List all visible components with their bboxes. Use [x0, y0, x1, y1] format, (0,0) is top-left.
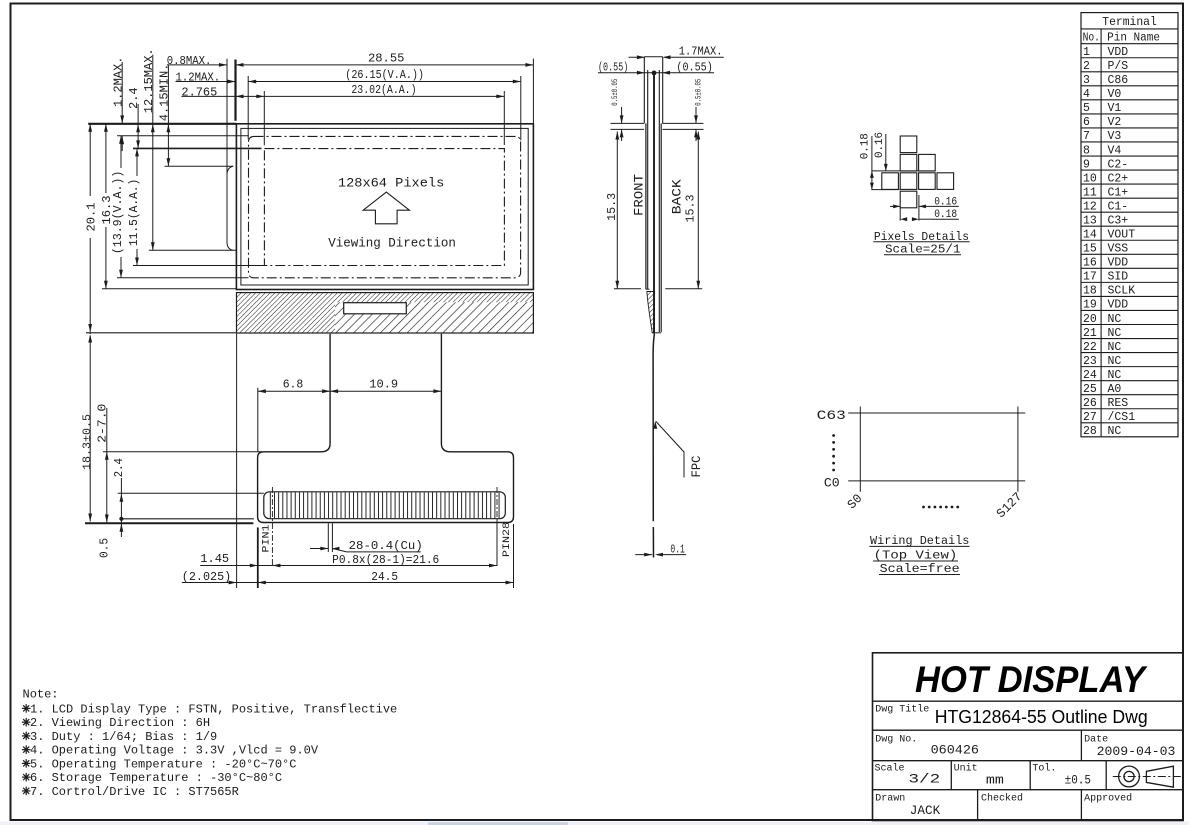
svg-text:C3+: C3+ — [1108, 214, 1129, 227]
svg-text:4. Operating Voltage : 3.3V ,V: 4. Operating Voltage : 3.3V ,Vlcd = 9.0V — [30, 744, 319, 758]
svg-text:NC: NC — [1108, 355, 1122, 368]
svg-text:VOUT: VOUT — [1108, 229, 1136, 242]
svg-text:(0.55): (0.55) — [676, 62, 712, 75]
svg-text:25: 25 — [1083, 383, 1097, 396]
svg-text:15: 15 — [1083, 243, 1097, 256]
svg-text:C63: C63 — [817, 409, 846, 423]
svg-text:20.1: 20.1 — [84, 203, 98, 232]
svg-text:7. Cortrol/Drive IC : ST7565R: 7. Cortrol/Drive IC : ST7565R — [30, 785, 239, 799]
svg-text:2.4: 2.4 — [127, 87, 141, 109]
svg-text:/CS1: /CS1 — [1108, 411, 1136, 424]
svg-text:(13.9(V.A.)): (13.9(V.A.)) — [111, 171, 125, 255]
svg-text:Viewing Direction: Viewing Direction — [328, 236, 456, 251]
svg-text:3. Duty : 1/64; Bias : 1/9: 3. Duty : 1/64; Bias : 1/9 — [30, 730, 217, 744]
svg-text:0.8MAX.: 0.8MAX. — [167, 54, 212, 68]
svg-text:C2+: C2+ — [1108, 172, 1129, 185]
svg-text:C86: C86 — [1108, 74, 1129, 87]
svg-text:(2.025): (2.025) — [182, 570, 231, 584]
svg-text:Tol.: Tol. — [1032, 763, 1056, 775]
svg-text:FPC: FPC — [690, 456, 704, 478]
svg-text:28.55: 28.55 — [368, 52, 404, 66]
svg-text:Pin Name: Pin Name — [1107, 31, 1160, 44]
svg-text:5. Operating Temperature : -20: 5. Operating Temperature : -20°C~70°C — [30, 757, 296, 771]
svg-text:C1-: C1- — [1108, 200, 1129, 213]
svg-text:VDD: VDD — [1108, 299, 1129, 312]
svg-text:1.7MAX.: 1.7MAX. — [679, 45, 723, 58]
svg-text:18: 18 — [1083, 285, 1097, 298]
svg-text:6: 6 — [1083, 116, 1090, 129]
svg-text:HTG12864-55 Outline Dwg: HTG12864-55 Outline Dwg — [935, 706, 1148, 727]
svg-text:BACK: BACK — [670, 179, 685, 214]
svg-text:(0.55): (0.55) — [598, 62, 628, 75]
svg-text:20: 20 — [1083, 313, 1097, 326]
svg-text:Dwg No.: Dwg No. — [875, 735, 917, 746]
svg-text:21: 21 — [1083, 327, 1097, 340]
svg-text:Scale=free: Scale=free — [880, 562, 960, 576]
svg-text:Scale: Scale — [875, 763, 905, 775]
svg-text:VDD: VDD — [1108, 257, 1129, 270]
svg-text:0.18: 0.18 — [860, 133, 872, 159]
svg-text:1. LCD Display Type : FSTN, Po: 1. LCD Display Type : FSTN, Positive, Tr… — [30, 702, 397, 716]
svg-text:2-7.0: 2-7.0 — [95, 404, 109, 443]
svg-text:Note:: Note: — [23, 688, 59, 702]
svg-text:19: 19 — [1083, 299, 1097, 312]
svg-text:15.3: 15.3 — [684, 195, 698, 223]
svg-text:23.02(A.A.): 23.02(A.A.) — [351, 83, 416, 97]
svg-text:6. Storage Temperature : -30°C: 6. Storage Temperature : -30°C~80°C — [30, 771, 282, 785]
svg-text:2. Viewing Direction : 6H: 2. Viewing Direction : 6H — [30, 716, 210, 730]
svg-text:Approved: Approved — [1084, 793, 1132, 805]
svg-text:RES: RES — [1108, 397, 1129, 410]
svg-text:V4: V4 — [1108, 144, 1122, 157]
svg-text:Drawn: Drawn — [875, 794, 905, 805]
svg-text:Dwg Title: Dwg Title — [875, 704, 929, 716]
svg-text:3/2: 3/2 — [908, 772, 940, 787]
svg-text:0.1: 0.1 — [670, 543, 685, 556]
svg-text:A0: A0 — [1108, 383, 1122, 396]
svg-text:FRONT: FRONT — [632, 174, 647, 216]
svg-text:V3: V3 — [1108, 130, 1122, 143]
svg-text:28: 28 — [1083, 425, 1097, 438]
svg-text:0.5±0.05: 0.5±0.05 — [694, 79, 704, 106]
svg-text:C0: C0 — [824, 477, 840, 491]
svg-text:28-0.4(Cu): 28-0.4(Cu) — [349, 539, 423, 553]
svg-text:1.2MAX.: 1.2MAX. — [176, 71, 221, 85]
svg-text:4: 4 — [1083, 88, 1090, 101]
svg-text:1.2MAX.: 1.2MAX. — [111, 57, 125, 108]
svg-text:C2-: C2- — [1108, 158, 1129, 171]
svg-text:12.15MAX.: 12.15MAX. — [142, 48, 156, 113]
svg-text:22: 22 — [1083, 341, 1097, 354]
svg-text:(26.15(V.A.)): (26.15(V.A.)) — [345, 68, 424, 82]
svg-text:0.16: 0.16 — [874, 132, 886, 158]
svg-text:26: 26 — [1083, 397, 1097, 410]
svg-text:NC: NC — [1108, 341, 1122, 354]
svg-text:V2: V2 — [1108, 116, 1122, 129]
svg-text:14: 14 — [1083, 229, 1097, 242]
svg-text:2: 2 — [1083, 60, 1090, 73]
svg-text:13: 13 — [1083, 214, 1097, 227]
svg-text:7: 7 — [1083, 130, 1090, 143]
svg-text:27: 27 — [1083, 411, 1097, 424]
svg-text:060426: 060426 — [931, 743, 979, 758]
svg-text:11.5(A.A.): 11.5(A.A.) — [127, 179, 141, 246]
svg-text:0.5±0.05: 0.5±0.05 — [610, 79, 620, 106]
svg-text:9: 9 — [1083, 158, 1090, 171]
svg-text:NC: NC — [1108, 327, 1122, 340]
svg-text:17: 17 — [1083, 271, 1097, 284]
svg-text:5: 5 — [1083, 102, 1090, 115]
svg-text:P/S: P/S — [1108, 60, 1129, 73]
svg-text:NC: NC — [1108, 369, 1122, 382]
svg-text:No.: No. — [1083, 31, 1100, 44]
svg-text:JACK: JACK — [910, 803, 941, 818]
svg-text:24: 24 — [1083, 369, 1097, 382]
svg-text:2009-04-03: 2009-04-03 — [1097, 744, 1176, 759]
svg-text:18.3±0.5: 18.3±0.5 — [82, 414, 94, 470]
svg-text:Checked: Checked — [981, 793, 1023, 805]
svg-text:SID: SID — [1108, 271, 1129, 284]
svg-text:P0.8x(28-1)=21.6: P0.8x(28-1)=21.6 — [332, 553, 439, 567]
svg-text:10: 10 — [1083, 172, 1097, 185]
svg-text:1.45: 1.45 — [200, 552, 229, 566]
svg-text:128x64 Pixels: 128x64 Pixels — [338, 176, 444, 191]
svg-text:2.4: 2.4 — [112, 458, 126, 477]
svg-text:SCLK: SCLK — [1108, 285, 1136, 298]
svg-text:11: 11 — [1083, 186, 1097, 199]
svg-text:VDD: VDD — [1108, 46, 1129, 59]
svg-text:V1: V1 — [1108, 102, 1122, 115]
svg-text:8: 8 — [1083, 144, 1090, 157]
svg-text:3: 3 — [1083, 74, 1090, 87]
svg-text:1: 1 — [1083, 46, 1090, 59]
svg-text:6.8: 6.8 — [283, 377, 304, 391]
svg-text:NC: NC — [1108, 425, 1122, 438]
svg-text:±0.5: ±0.5 — [1065, 773, 1091, 788]
svg-text:0.5: 0.5 — [98, 538, 112, 558]
svg-text:16: 16 — [1083, 257, 1097, 270]
svg-text:NC: NC — [1108, 313, 1122, 326]
svg-text:15.3: 15.3 — [605, 193, 619, 221]
svg-text:2.765: 2.765 — [181, 86, 217, 100]
svg-text:C1+: C1+ — [1108, 186, 1129, 199]
svg-text:VSS: VSS — [1108, 243, 1129, 256]
svg-text:24.5: 24.5 — [371, 570, 398, 584]
svg-text:PIN1: PIN1 — [260, 525, 272, 553]
svg-text:V0: V0 — [1108, 88, 1122, 101]
svg-text:Terminal: Terminal — [1102, 15, 1157, 29]
svg-text:10.9: 10.9 — [369, 377, 398, 391]
svg-text:4.15MIN.: 4.15MIN. — [157, 64, 171, 122]
svg-text:mm: mm — [986, 773, 1004, 788]
svg-text:Unit: Unit — [954, 763, 978, 775]
svg-text:12: 12 — [1083, 200, 1097, 213]
svg-text:PIN28: PIN28 — [501, 522, 513, 557]
svg-text:23: 23 — [1083, 355, 1097, 368]
svg-text:HOT DISPLAY: HOT DISPLAY — [915, 659, 1148, 700]
